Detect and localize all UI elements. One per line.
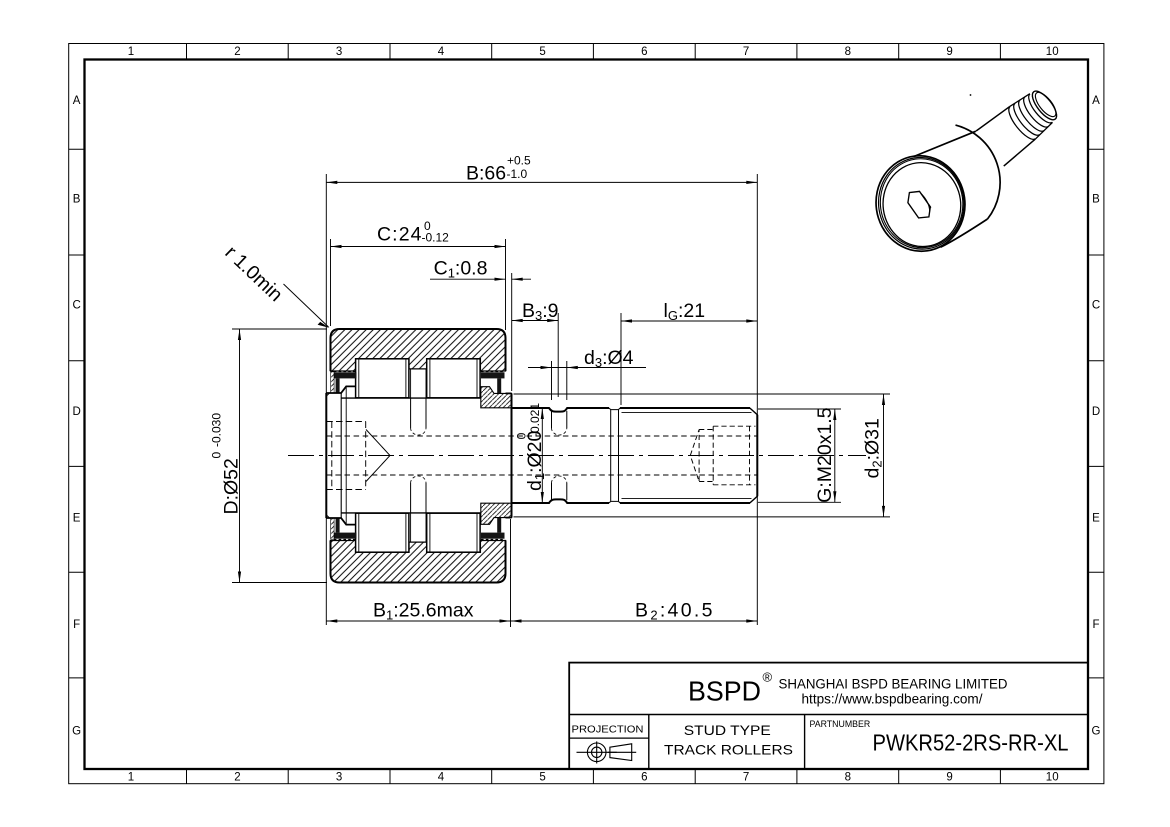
- svg-text:-0.12: -0.12: [422, 230, 450, 244]
- svg-text:4: 4: [438, 771, 445, 783]
- svg-text:PARTNUMBER: PARTNUMBER: [810, 719, 871, 729]
- svg-text:2: 2: [234, 771, 240, 783]
- svg-text:C:24: C:24: [377, 224, 423, 246]
- svg-text:d3:Ø4: d3:Ø4: [584, 347, 634, 370]
- svg-text:C: C: [1092, 300, 1100, 312]
- svg-text:G: G: [1092, 726, 1101, 738]
- svg-text:B2:40.5: B2:40.5: [635, 600, 715, 623]
- svg-text:d2:Ø31: d2:Ø31: [862, 418, 885, 478]
- svg-text:0: 0: [515, 432, 529, 439]
- svg-text:A: A: [73, 95, 81, 107]
- svg-text:PWKR52-2RS-RR-XL: PWKR52-2RS-RR-XL: [873, 730, 1069, 756]
- svg-text:3: 3: [336, 771, 342, 783]
- svg-text:1: 1: [128, 46, 134, 58]
- svg-text:F: F: [1092, 619, 1099, 631]
- svg-text:5: 5: [539, 46, 545, 58]
- svg-text:C: C: [72, 300, 80, 312]
- svg-text:7: 7: [743, 771, 749, 783]
- svg-text:9: 9: [946, 771, 952, 783]
- svg-text:®: ®: [763, 670, 773, 685]
- svg-text:G:M20x1.5: G:M20x1.5: [814, 407, 836, 503]
- svg-text:0: 0: [210, 452, 224, 459]
- svg-text:B: B: [1092, 193, 1100, 205]
- svg-text:E: E: [1092, 513, 1100, 525]
- svg-text:6: 6: [641, 46, 647, 58]
- svg-text:8: 8: [845, 771, 851, 783]
- svg-text:6: 6: [641, 771, 647, 783]
- svg-text:https://www.bspdbearing.com/: https://www.bspdbearing.com/: [802, 692, 983, 707]
- svg-text:8: 8: [845, 46, 851, 58]
- svg-text:SHANGHAI BSPD BEARING LIMITED: SHANGHAI BSPD BEARING LIMITED: [779, 677, 1008, 693]
- svg-text:D: D: [72, 406, 80, 418]
- svg-text:TRACK ROLLERS: TRACK ROLLERS: [664, 742, 793, 757]
- svg-text:2: 2: [234, 46, 240, 58]
- svg-text:10: 10: [1046, 46, 1059, 58]
- svg-text:STUD TYPE: STUD TYPE: [684, 723, 771, 738]
- svg-text:-0.030: -0.030: [210, 413, 224, 447]
- svg-text:E: E: [73, 513, 81, 525]
- svg-text:9: 9: [946, 46, 952, 58]
- svg-text:5: 5: [539, 771, 545, 783]
- svg-text:BSPD: BSPD: [688, 676, 761, 707]
- svg-text:1: 1: [128, 771, 134, 783]
- svg-text:B: B: [73, 193, 81, 205]
- svg-text:7: 7: [743, 46, 749, 58]
- svg-text:D: D: [1092, 406, 1100, 418]
- svg-text:4: 4: [438, 46, 445, 58]
- svg-text:C1:0.8: C1:0.8: [434, 258, 488, 281]
- svg-text:+0.5: +0.5: [507, 154, 531, 168]
- svg-text:-1.0: -1.0: [507, 167, 528, 181]
- svg-text:D:Ø52: D:Ø52: [221, 458, 243, 514]
- svg-text:-0.021: -0.021: [528, 403, 542, 437]
- svg-text:PROJECTION: PROJECTION: [572, 724, 644, 736]
- svg-text:10: 10: [1046, 771, 1059, 783]
- svg-text:A: A: [1092, 95, 1100, 107]
- svg-text:F: F: [73, 619, 80, 631]
- svg-text:3: 3: [336, 46, 342, 58]
- svg-text:B:66: B:66: [466, 163, 506, 185]
- svg-text:G: G: [72, 726, 81, 738]
